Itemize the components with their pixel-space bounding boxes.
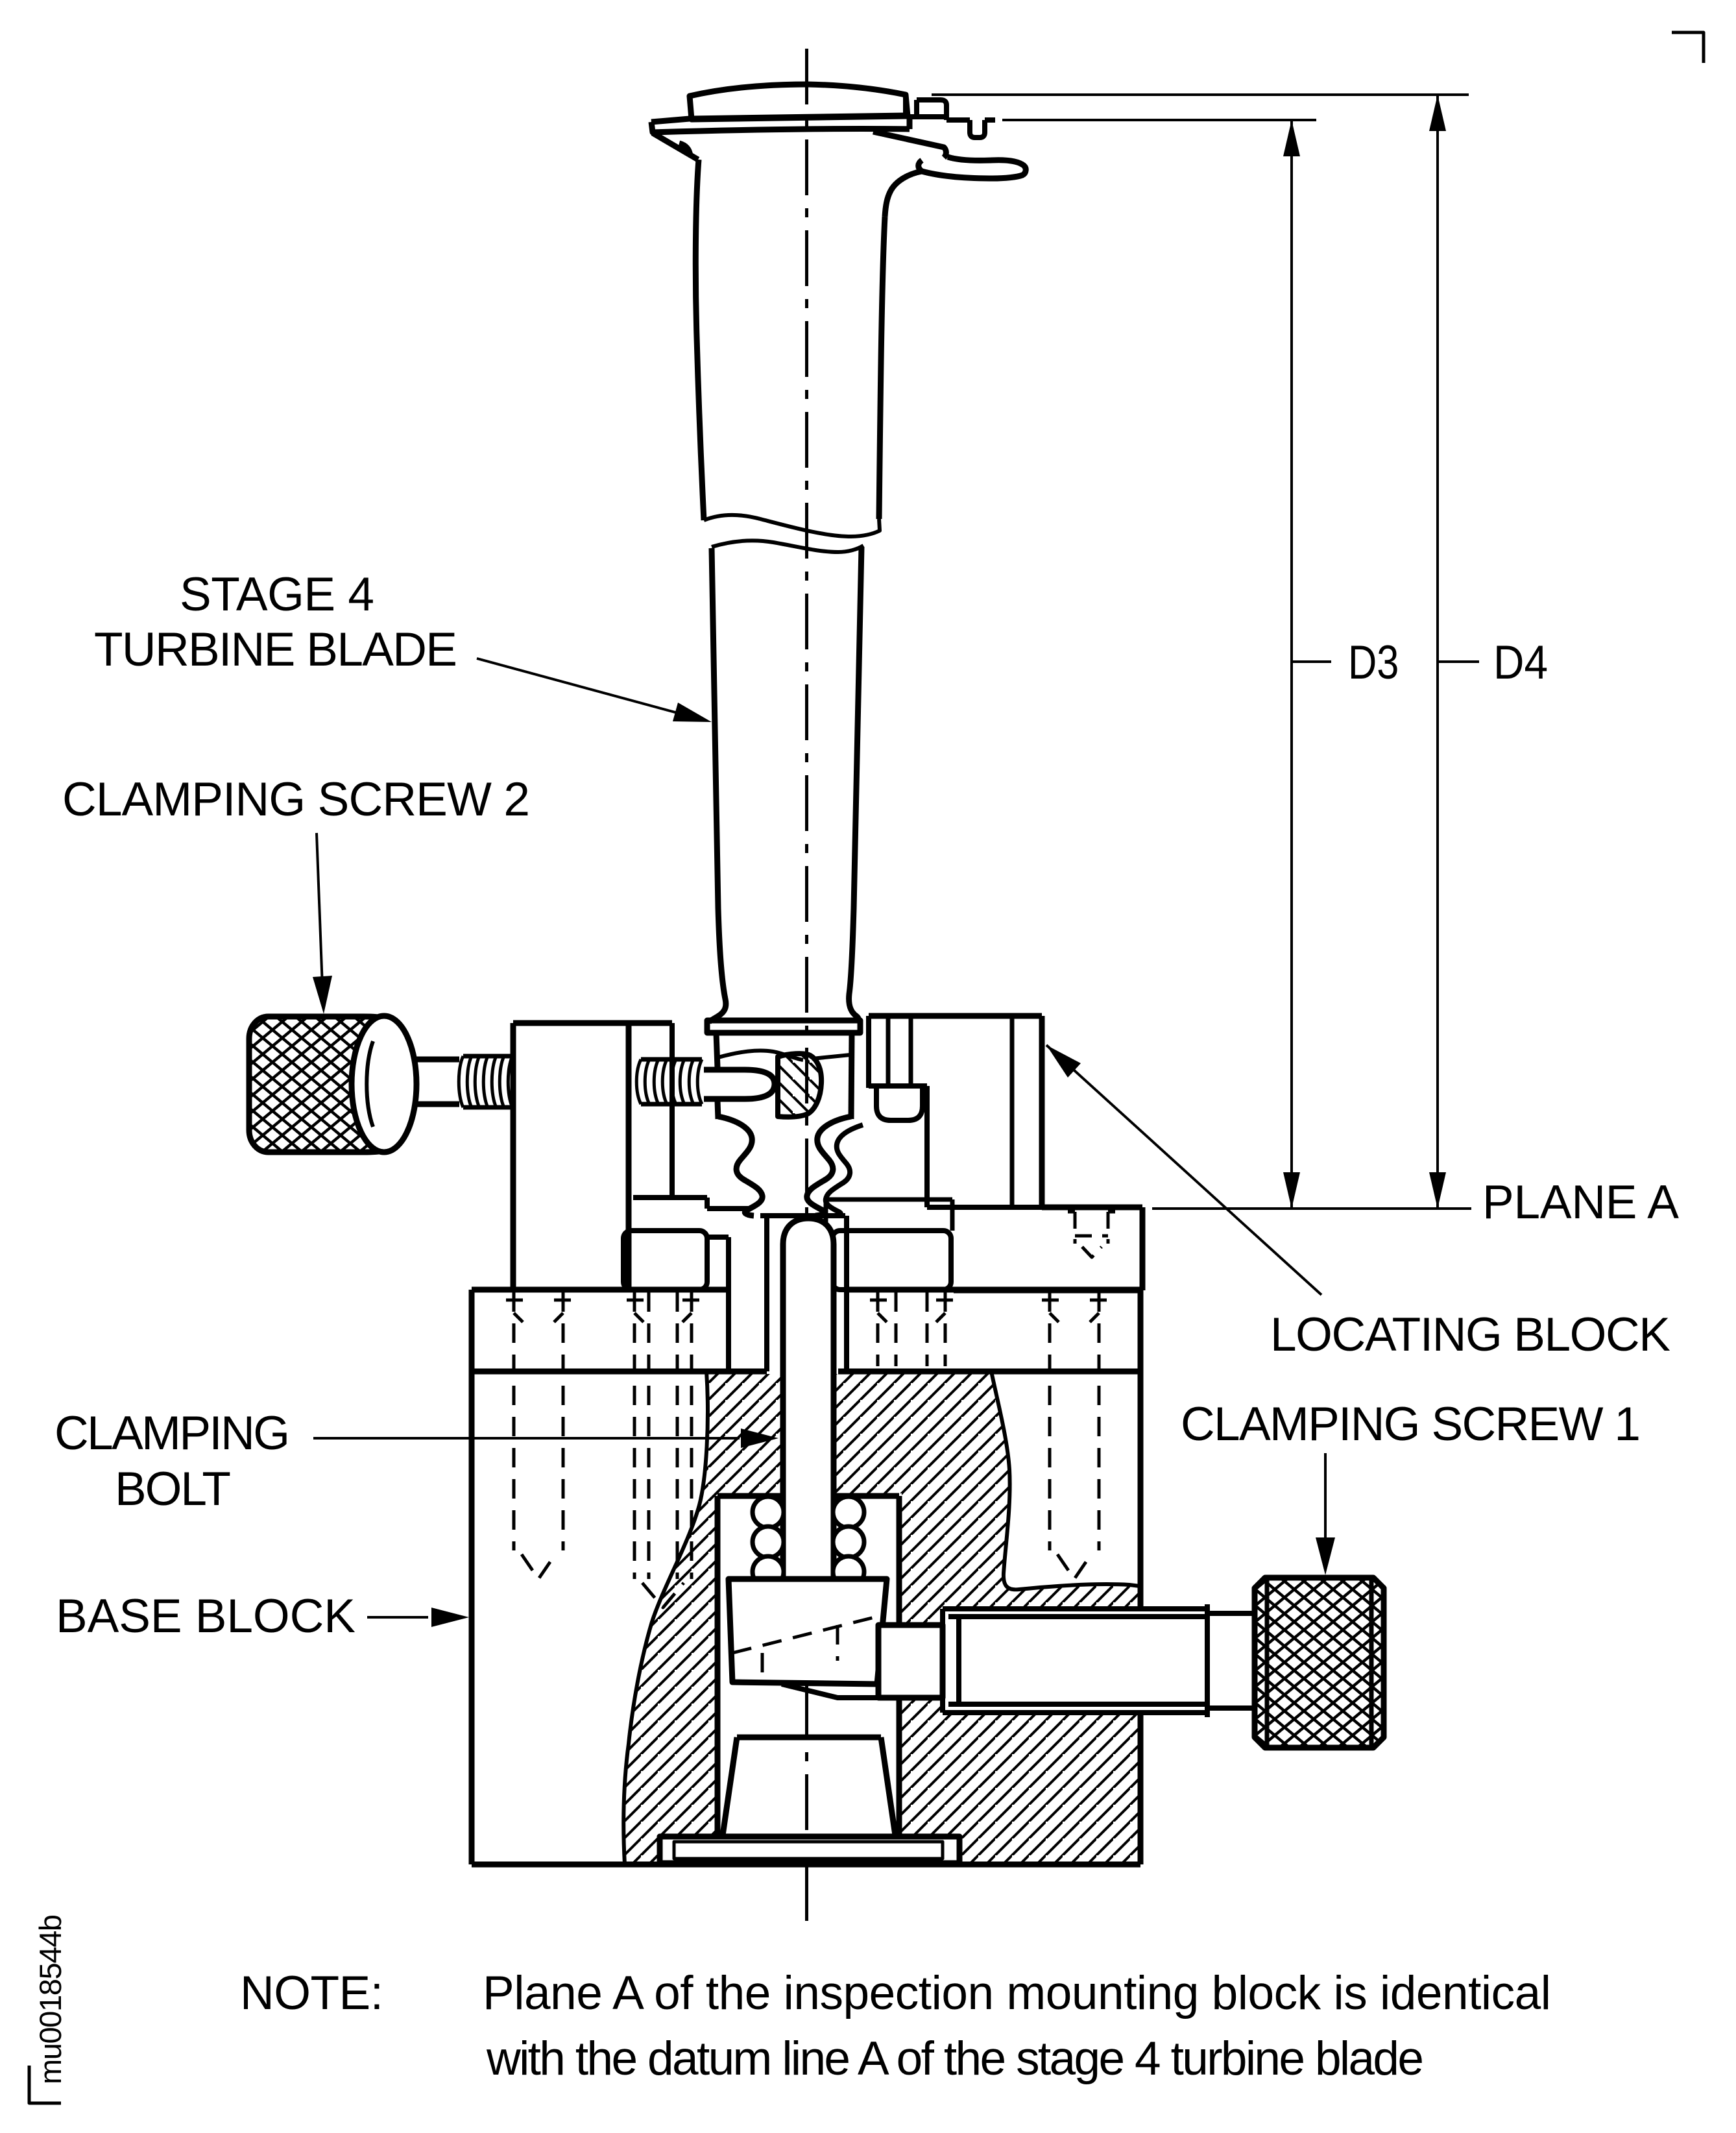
svg-text:D3: D3 (1348, 636, 1399, 689)
svg-text:with the datum line A of the s: with the datum line A of the stage 4 tur… (486, 2032, 1424, 2085)
svg-text:CLAMPING SCREW 1: CLAMPING SCREW 1 (1181, 1398, 1641, 1451)
svg-text:Plane A of the inspection moun: Plane A of the inspection mounting block… (483, 1967, 1551, 2019)
svg-text:mu0018544b: mu0018544b (33, 1914, 67, 2084)
svg-text:CLAMPING SCREW 2: CLAMPING SCREW 2 (62, 773, 530, 826)
svg-text:STAGE 4: STAGE 4 (180, 568, 374, 621)
svg-text:PLANE A: PLANE A (1482, 1176, 1679, 1229)
svg-text:D4: D4 (1493, 636, 1548, 689)
svg-text:BASE BLOCK: BASE BLOCK (56, 1590, 356, 1643)
svg-text:TURBINE BLADE: TURBINE BLADE (94, 623, 457, 676)
svg-text:LOCATING BLOCK: LOCATING BLOCK (1270, 1308, 1670, 1361)
svg-text:NOTE:: NOTE: (240, 1967, 383, 2019)
svg-text:BOLT: BOLT (115, 1463, 231, 1515)
svg-text:CLAMPING: CLAMPING (54, 1407, 290, 1460)
